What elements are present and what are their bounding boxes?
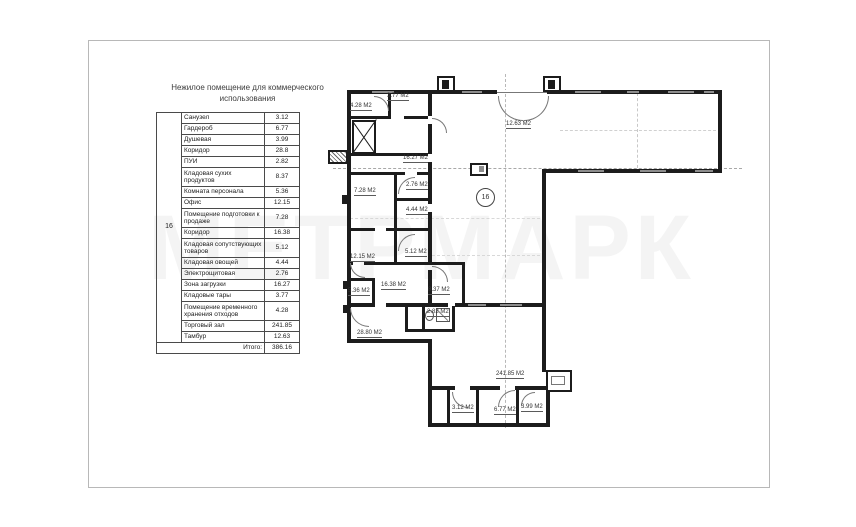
room-name: Электрощитовая bbox=[182, 269, 265, 280]
wall bbox=[347, 278, 375, 281]
wall bbox=[542, 169, 546, 372]
wall bbox=[364, 262, 430, 265]
window bbox=[500, 304, 522, 306]
wall bbox=[428, 262, 465, 265]
room-area: 16.38 bbox=[265, 228, 300, 239]
wall bbox=[428, 162, 432, 204]
wall bbox=[546, 169, 553, 173]
area-label: 3.99 М2 bbox=[521, 404, 543, 412]
room-name: Кладовые тары bbox=[182, 291, 265, 302]
area-label: 2.82 М2 bbox=[427, 309, 449, 317]
room-name: Зона загрузки bbox=[182, 280, 265, 291]
room-area: 4.44 bbox=[265, 258, 300, 269]
room-area: 241.85 bbox=[265, 321, 300, 332]
axis-line bbox=[432, 255, 540, 256]
room-name: Коридор bbox=[182, 146, 265, 157]
window bbox=[468, 304, 486, 306]
window bbox=[695, 170, 713, 172]
area-label: 12.63 М2 bbox=[506, 121, 531, 129]
area-label: 3.77 М2 bbox=[387, 93, 409, 101]
wall bbox=[447, 390, 450, 423]
window bbox=[575, 91, 601, 93]
room-name: Душевая bbox=[182, 135, 265, 146]
area-label: 6.77 М2 bbox=[494, 407, 516, 415]
room-name: Торговый зал bbox=[182, 321, 265, 332]
room-area: 3.12 bbox=[265, 113, 300, 124]
wall bbox=[462, 262, 465, 306]
window bbox=[627, 91, 639, 93]
window bbox=[462, 91, 482, 93]
wall bbox=[386, 303, 448, 307]
room-area: 4.28 bbox=[265, 302, 300, 321]
total-row: Итого:386.16 bbox=[157, 343, 300, 354]
room-name: Коридор bbox=[182, 228, 265, 239]
pilaster-core bbox=[548, 80, 555, 89]
wall bbox=[404, 116, 428, 119]
axis-line bbox=[560, 130, 716, 131]
window bbox=[668, 91, 694, 93]
wall bbox=[516, 390, 519, 423]
area-label: 7.28 М2 bbox=[354, 188, 376, 196]
pilaster-core bbox=[442, 80, 449, 89]
wall bbox=[394, 175, 397, 262]
wall bbox=[347, 339, 432, 343]
room-area: 3.77 bbox=[265, 291, 300, 302]
window bbox=[578, 170, 604, 172]
wall bbox=[347, 303, 373, 307]
wall bbox=[386, 228, 431, 231]
area-label: 5.12 М2 bbox=[405, 249, 427, 257]
drawing-title-line1: Нежилое помещение для коммерческого bbox=[140, 82, 355, 93]
wall bbox=[515, 386, 548, 390]
room-area: 28.8 bbox=[265, 146, 300, 157]
wall bbox=[428, 212, 432, 262]
room-name: Кладовая сухих продуктов bbox=[182, 168, 265, 187]
room-area: 6.77 bbox=[265, 124, 300, 135]
room-name: Кладовая сопутствующих товаров bbox=[182, 239, 265, 258]
duct-shaft bbox=[328, 150, 348, 164]
room-name: Кладовая овощей bbox=[182, 258, 265, 269]
room-area: 16.27 bbox=[265, 280, 300, 291]
window bbox=[704, 91, 714, 93]
drawing-sheet: МЕТРМАРК Нежилое помещение для коммерчес… bbox=[0, 0, 856, 527]
room-area: 5.12 bbox=[265, 239, 300, 258]
area-label: 16.27 М2 bbox=[403, 155, 428, 163]
room-areas-table: 16 Санузел 3.12 Гардероб6.77 Душевая3.99… bbox=[156, 112, 300, 354]
wall bbox=[546, 390, 550, 427]
wall bbox=[718, 90, 722, 173]
room-area: 12.15 bbox=[265, 198, 300, 209]
room-name: Офис bbox=[182, 198, 265, 209]
area-label: 8.37 М2 bbox=[428, 287, 450, 295]
area-label: 28.80 М2 bbox=[357, 330, 382, 338]
entrance-ramp-step bbox=[551, 376, 565, 385]
wall bbox=[405, 329, 455, 332]
axis-line bbox=[350, 218, 540, 219]
unit-circle: 16 bbox=[476, 188, 495, 207]
total-label: Итого: bbox=[157, 343, 265, 354]
room-area: 2.76 bbox=[265, 269, 300, 280]
room-area: 8.37 bbox=[265, 168, 300, 187]
wall bbox=[497, 92, 547, 93]
area-label: 4.44 М2 bbox=[406, 207, 428, 215]
drawing-title: Нежилое помещение для коммерческого испо… bbox=[140, 82, 355, 104]
room-name: Гардероб bbox=[182, 124, 265, 135]
wall bbox=[351, 116, 391, 119]
room-area: 5.36 bbox=[265, 187, 300, 198]
wall bbox=[428, 94, 432, 116]
room-name: ПУИ bbox=[182, 157, 265, 168]
wall bbox=[470, 386, 500, 390]
wall-nub bbox=[342, 195, 348, 204]
room-name: Санузел bbox=[182, 113, 265, 124]
area-label: 3.12 М2 bbox=[452, 405, 474, 413]
wall bbox=[417, 172, 428, 175]
window bbox=[640, 170, 666, 172]
area-label: 241.85 М2 bbox=[496, 371, 524, 379]
drawing-title-line2: использования bbox=[140, 93, 355, 104]
room-name: Тамбур bbox=[182, 332, 265, 343]
table-row: 16 Санузел 3.12 bbox=[157, 113, 300, 124]
room-name: Помещение подготовки к продаже bbox=[182, 209, 265, 228]
wall bbox=[428, 339, 432, 427]
area-label: 2.76 М2 bbox=[406, 182, 428, 190]
area-label: 12.15 М2 bbox=[350, 254, 375, 262]
total-area: 386.16 bbox=[265, 343, 300, 354]
wall bbox=[347, 228, 375, 231]
room-area: 12.63 bbox=[265, 332, 300, 343]
column-core bbox=[479, 166, 484, 172]
wall bbox=[428, 423, 550, 427]
room-area: 7.28 bbox=[265, 209, 300, 228]
room-area: 3.99 bbox=[265, 135, 300, 146]
room-name: Комната персонала bbox=[182, 187, 265, 198]
wall bbox=[476, 390, 479, 423]
wall bbox=[397, 198, 428, 201]
room-area: 2.82 bbox=[265, 157, 300, 168]
area-label: 4.28 М2 bbox=[350, 103, 372, 111]
room-name: Помещение временного хранения отходов bbox=[182, 302, 265, 321]
legend-table: 16 Санузел 3.12 Гардероб6.77 Душевая3.99… bbox=[156, 112, 300, 354]
wall bbox=[428, 386, 455, 390]
area-label: 16.38 М2 bbox=[381, 282, 406, 290]
area-label: 5.36 М2 bbox=[348, 288, 370, 296]
unit-number-cell: 16 bbox=[157, 113, 182, 343]
